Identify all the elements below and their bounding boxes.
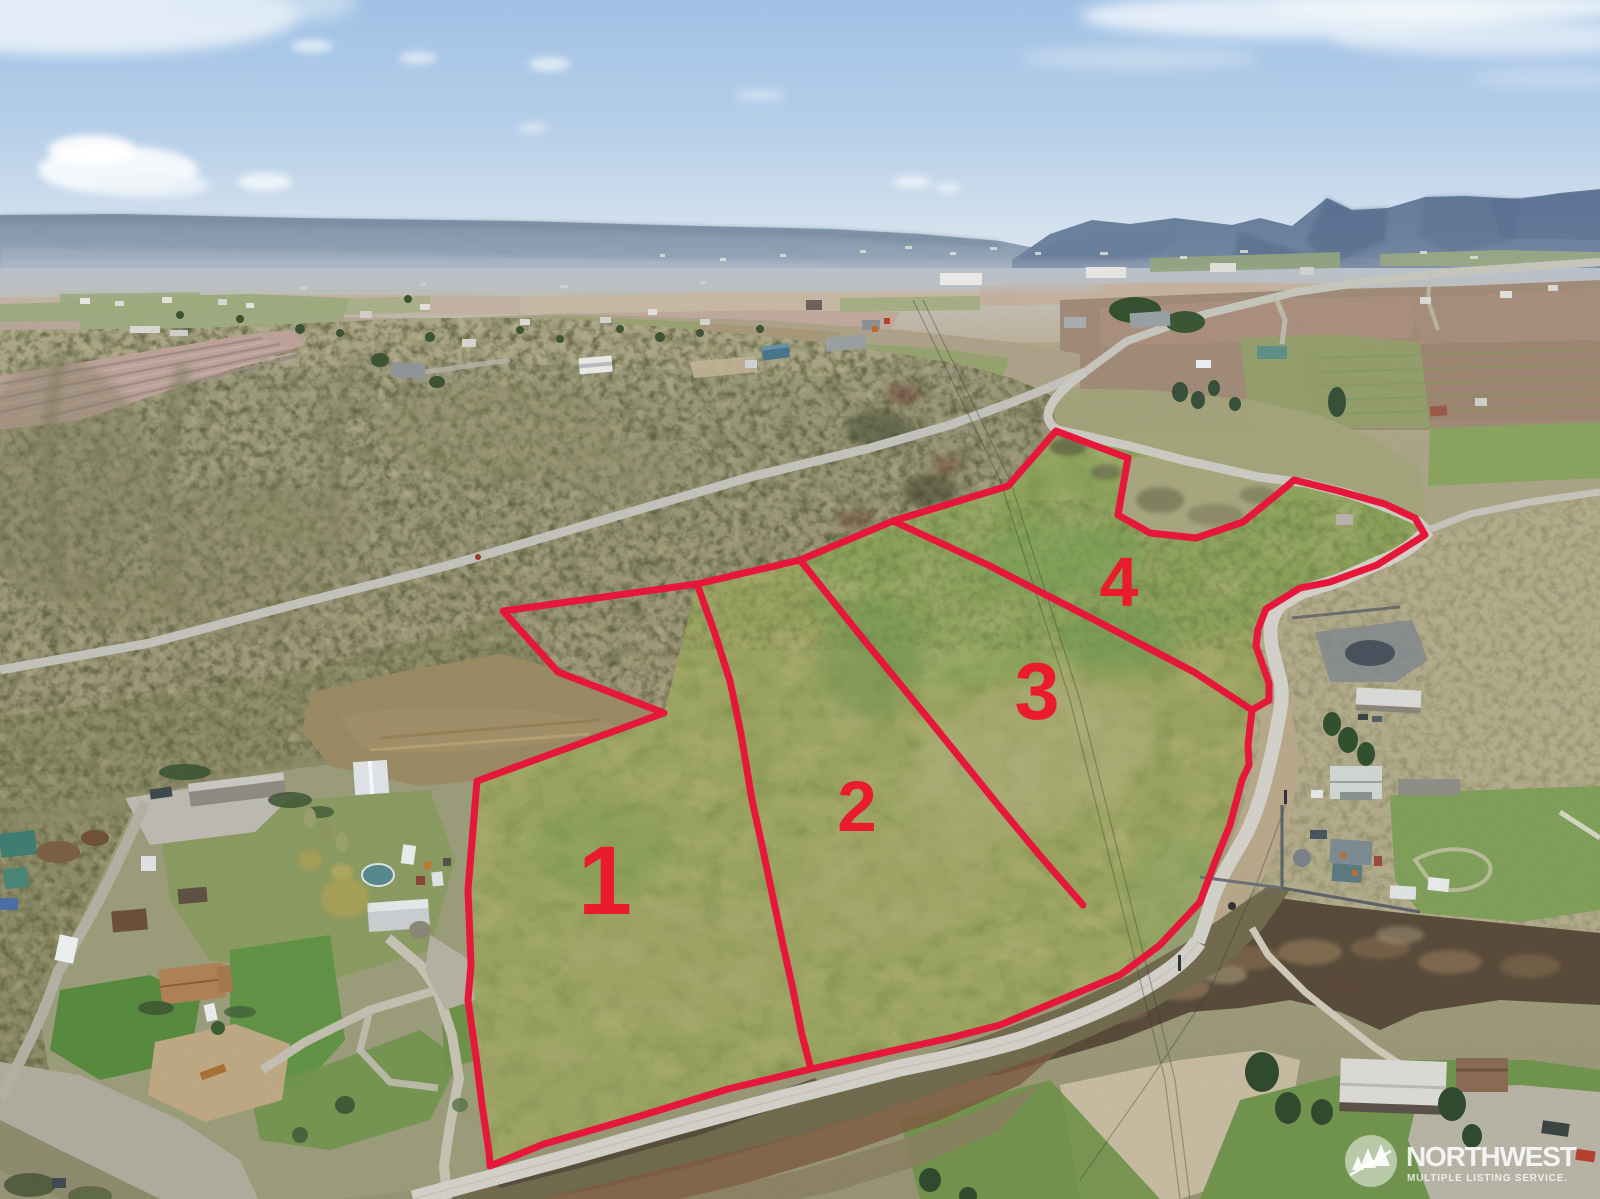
svg-text:1: 1 (578, 826, 632, 935)
svg-text:2: 2 (837, 768, 877, 847)
svg-text:3: 3 (1014, 647, 1059, 737)
svg-text:NORTHWEST: NORTHWEST (1406, 1141, 1577, 1172)
svg-text:MULTIPLE LISTING SERVICE.: MULTIPLE LISTING SERVICE. (1407, 1173, 1568, 1184)
svg-text:4: 4 (1100, 543, 1139, 621)
